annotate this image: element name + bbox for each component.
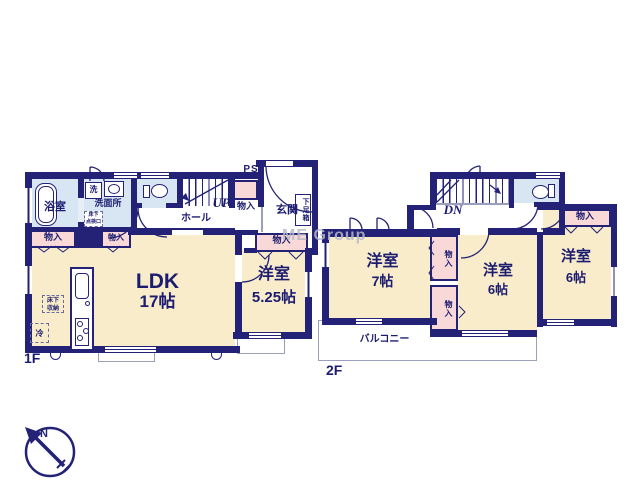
room7-door-arc xyxy=(412,207,433,228)
window xyxy=(105,347,156,352)
window xyxy=(356,319,382,324)
underfloor-storage-box: 床下 収納 xyxy=(42,295,64,313)
wall xyxy=(235,235,242,332)
window xyxy=(462,331,508,336)
room7-label: 洋室 xyxy=(355,253,410,271)
stairs-dn-label: DN xyxy=(438,203,468,217)
fridge-box: 冷 xyxy=(30,323,49,343)
window xyxy=(305,272,312,297)
closet-ps-box xyxy=(233,180,258,200)
room6a-label: 洋室 xyxy=(468,263,528,280)
wall xyxy=(437,228,565,235)
underfloor-storage-label-l1: 床下 xyxy=(47,298,59,304)
terrace-outline xyxy=(98,352,155,362)
ldk-size-label: 17帖 xyxy=(120,293,195,312)
wall xyxy=(537,204,617,210)
closet-entrance-label: 物入 xyxy=(255,236,308,246)
window xyxy=(547,320,574,325)
toilet-icon-2f xyxy=(532,185,549,199)
ldk-label: LDK xyxy=(120,270,195,293)
room7-size-label: 7帖 xyxy=(355,274,410,289)
window xyxy=(536,173,560,178)
closet-bath-label: 物入 xyxy=(30,233,76,243)
ldk-opening xyxy=(172,228,203,235)
toilet-tank-icon-2f xyxy=(548,184,555,198)
floor-label-1f: 1F xyxy=(24,351,54,366)
porch-outline xyxy=(237,338,285,354)
kitchen-counter xyxy=(70,267,94,351)
window xyxy=(25,188,32,223)
closet-c-label: 物入 xyxy=(559,212,611,222)
inspection-hatch-box: 床下 点検口 xyxy=(84,211,103,227)
door-gap xyxy=(235,255,242,282)
toilet-icon-1f xyxy=(151,184,168,198)
wall xyxy=(76,227,101,248)
window xyxy=(114,173,137,178)
room6b-size-label: 6帖 xyxy=(545,271,607,285)
wall xyxy=(407,205,414,232)
closet-b-label: 物入 xyxy=(436,293,452,325)
bedroom525-label: 洋室 xyxy=(246,266,302,284)
underfloor-storage-label-l2: 収納 xyxy=(47,306,59,312)
door-gap xyxy=(460,228,488,235)
stove-icon xyxy=(75,318,89,346)
window xyxy=(322,243,329,267)
stairs-2f xyxy=(436,179,509,204)
window xyxy=(25,266,32,294)
washbasin-icon xyxy=(104,181,124,197)
entrance-label: 玄関 xyxy=(266,204,308,216)
toilet-door-arc-2f xyxy=(512,204,538,229)
washer-label: 洗 xyxy=(85,186,102,195)
wall xyxy=(135,203,142,208)
wall xyxy=(611,204,617,327)
compass-north-label: N xyxy=(40,428,48,440)
vent-icon xyxy=(211,352,222,360)
wall xyxy=(322,229,437,237)
kitchen-sink-icon xyxy=(75,273,89,299)
closet-ps-label: 物入 xyxy=(231,202,261,212)
toilet-tank-icon xyxy=(143,185,150,198)
closet-a-label: 物入 xyxy=(436,243,452,275)
window xyxy=(611,267,617,296)
entrance-door-gap xyxy=(266,161,293,166)
wall xyxy=(166,203,182,208)
bath-label: 浴室 xyxy=(33,201,77,213)
balcony-label: バルコニー xyxy=(352,334,417,345)
inspection-hatch-label-l2: 点検口 xyxy=(86,219,101,225)
bedroom525-size-label: 5.25帖 xyxy=(243,290,305,307)
inspection-hatch-label-l1: 床下 xyxy=(88,212,98,218)
fridge-label: 冷 xyxy=(36,329,44,338)
floor-label-2f: 2F xyxy=(326,363,356,378)
window xyxy=(141,173,169,178)
ps-label: PS xyxy=(240,164,262,175)
room6a-size-label: 6帖 xyxy=(468,283,528,297)
wall xyxy=(312,160,318,255)
wall xyxy=(244,248,257,253)
closet-wash-label: 物入 xyxy=(101,234,131,243)
wall xyxy=(509,202,512,207)
window xyxy=(249,333,281,338)
hall-label: ホール xyxy=(176,213,216,224)
floor-plan: 床下 収納 冷 床下 点検口 下足箱 浴室 洗 洗面所 ホール UP PS 物入… xyxy=(0,0,640,480)
room6b-label: 洋室 xyxy=(545,249,607,266)
washroom-label: 洗面所 xyxy=(84,199,132,209)
compass-icon: N xyxy=(18,420,82,480)
entrance-step-line xyxy=(261,207,263,232)
door-gap xyxy=(537,208,543,232)
